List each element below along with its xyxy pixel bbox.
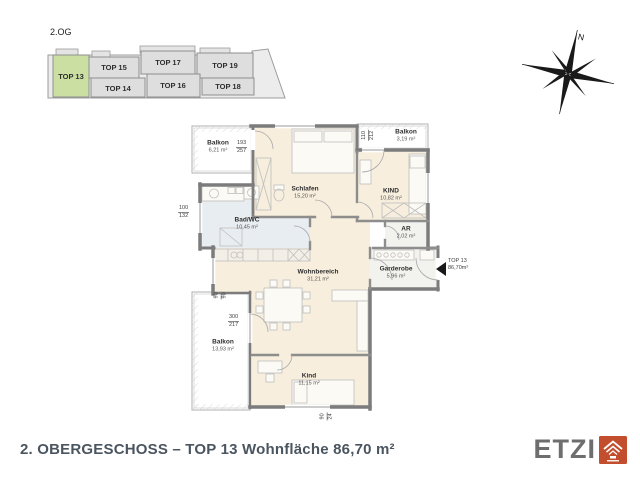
entrance-unit: TOP 13 [448, 258, 468, 265]
overview-unit-label: TOP 17 [155, 58, 181, 67]
dimension-label: 90 90 [214, 291, 229, 299]
dimension-label: 90 24 [320, 412, 335, 420]
dimension-label: 300 217 [228, 314, 239, 329]
overview-unit-label: TOP 19 [212, 61, 238, 70]
building-notch [92, 51, 110, 57]
overview-unit-label: TOP 18 [215, 82, 241, 91]
logo-house-icon [599, 436, 627, 464]
compass-point-nw [548, 50, 570, 71]
dimension-label: 193 257 [236, 140, 247, 155]
overview-unit-label: TOP 16 [160, 81, 186, 90]
room-ar [385, 221, 428, 248]
floorplan-page: 2.OG TOP 13 TOP 15 TOP 17 TOP 19 TOP 14 … [0, 0, 640, 480]
plan-title: 2. OBERGESCHOSS – TOP 13 Wohnfläche 86,7… [20, 441, 395, 458]
entrance-unit-label: TOP 13 86,70m² [448, 258, 468, 272]
dimension-label: 100 132 [178, 205, 189, 220]
floor-plan-drawing [180, 118, 480, 433]
overview-unit-label: TOP 14 [105, 84, 131, 93]
overview-unit-label: TOP 15 [101, 63, 127, 72]
entrance-area: 86,70m² [448, 265, 468, 272]
compass-rose: N [518, 22, 618, 122]
dimension-label: 110 212 [361, 130, 376, 141]
logo-text: ETZI [534, 436, 597, 463]
overview-unit-label: TOP 13 [58, 72, 84, 81]
compass-north-label: N [577, 31, 585, 42]
logo: ETZI [534, 436, 628, 464]
building-overview-map: TOP 13 TOP 15 TOP 17 TOP 19 TOP 14 TOP 1… [40, 36, 290, 102]
